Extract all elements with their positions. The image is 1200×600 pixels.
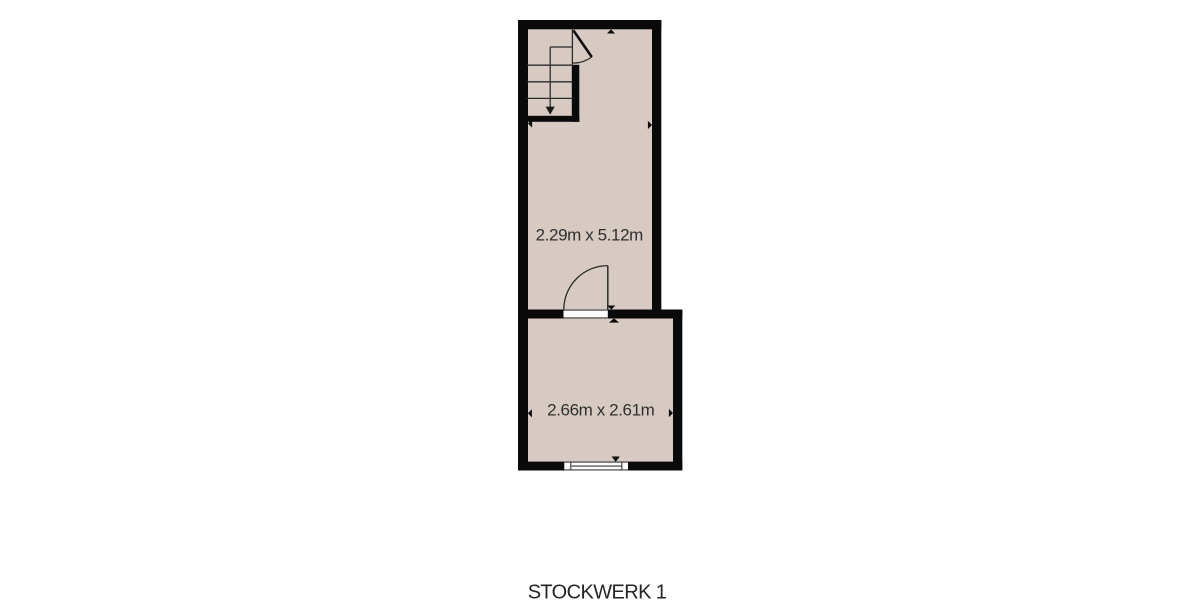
svg-text:2.66m x 2.61m: 2.66m x 2.61m — [547, 401, 654, 420]
svg-text:STOCKWERK 1: STOCKWERK 1 — [528, 582, 667, 600]
svg-text:2.29m x 5.12m: 2.29m x 5.12m — [536, 225, 643, 244]
